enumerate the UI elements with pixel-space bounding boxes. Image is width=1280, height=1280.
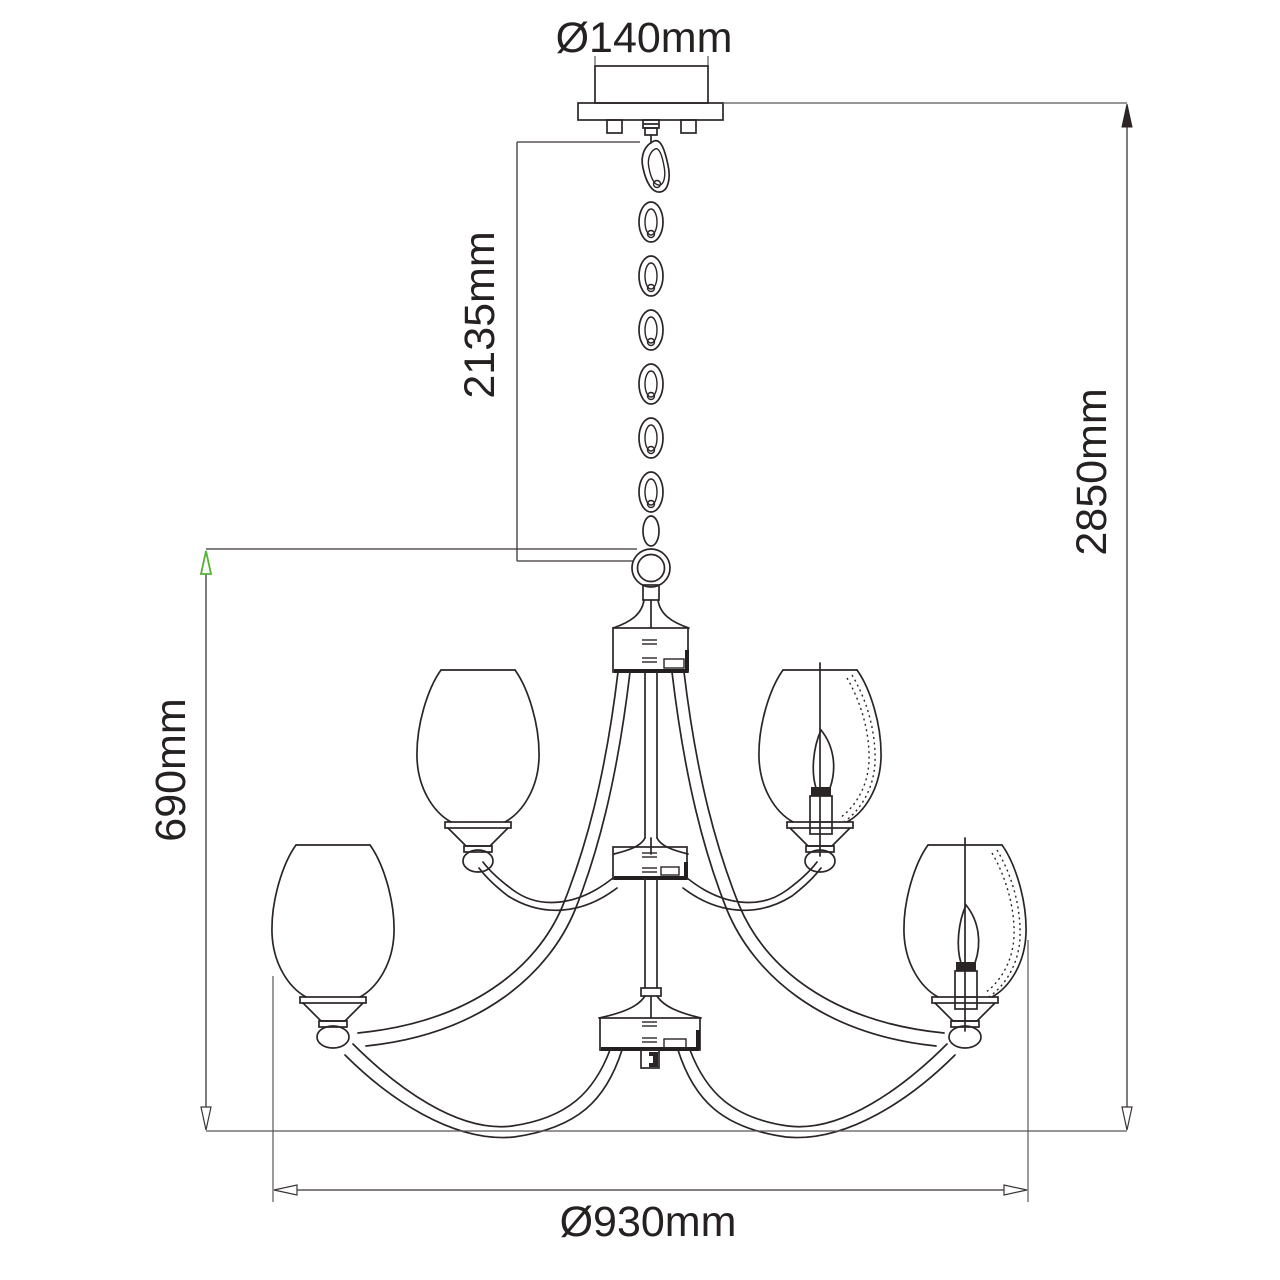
dimension-total-height: 2850mm (723, 103, 1132, 1130)
dimension-canopy-diameter: Ø140mm (556, 14, 733, 66)
body-height-label: 690mm (147, 698, 195, 841)
finial (641, 1050, 659, 1068)
arm-lower-left (345, 1044, 622, 1138)
chandelier-dimension-diagram: Ø140mm (0, 0, 1280, 1280)
chain-link (639, 256, 663, 296)
lower-hub (599, 996, 701, 1068)
chain-link (639, 310, 663, 350)
hatching (840, 678, 869, 818)
dimension-body-height: 690mm (147, 549, 1127, 1131)
upper-hub (613, 600, 689, 672)
chain-link (639, 472, 663, 512)
hanging-ring (632, 549, 670, 600)
arm-long-left (358, 672, 630, 1046)
chain-link (639, 418, 663, 458)
center-rod-upper (645, 672, 657, 838)
suspension-hook (642, 135, 669, 192)
candle-bulb (958, 905, 978, 963)
arm-long-right (672, 672, 944, 1046)
canopy-diameter-label: Ø140mm (556, 14, 733, 62)
dimension-body-diameter: Ø930mm (273, 940, 1028, 1246)
candle-socket (956, 962, 976, 971)
glass-shade-upper-left (417, 670, 539, 872)
chain-link (639, 364, 663, 404)
middle-hub (613, 838, 688, 879)
chain-length-label: 2135mm (456, 231, 504, 398)
chain-link (639, 202, 663, 242)
candle-bulb (813, 730, 833, 788)
ceiling-canopy (578, 66, 723, 135)
hatching (985, 853, 1014, 993)
candle-socket (811, 787, 831, 796)
center-rod-lower (641, 879, 661, 996)
suspension-chain (639, 202, 663, 546)
dimension-chain-length: 2135mm (456, 142, 640, 561)
glass-shade-upper-right (759, 663, 881, 872)
arm-upper-left (479, 862, 617, 910)
glass-shade-lower-right (904, 838, 1026, 1048)
body-diameter-label: Ø930mm (560, 1198, 737, 1246)
arm-lower-right (678, 1044, 955, 1138)
glass-shade-lower-left (272, 845, 394, 1048)
chandelier-dimension-diagram-page: Ø140mm (0, 0, 1280, 1280)
arm-upper-right (683, 862, 821, 910)
total-height-label: 2850mm (1068, 388, 1116, 555)
green-arrow-up (201, 551, 211, 574)
chain-end-link (643, 516, 659, 546)
